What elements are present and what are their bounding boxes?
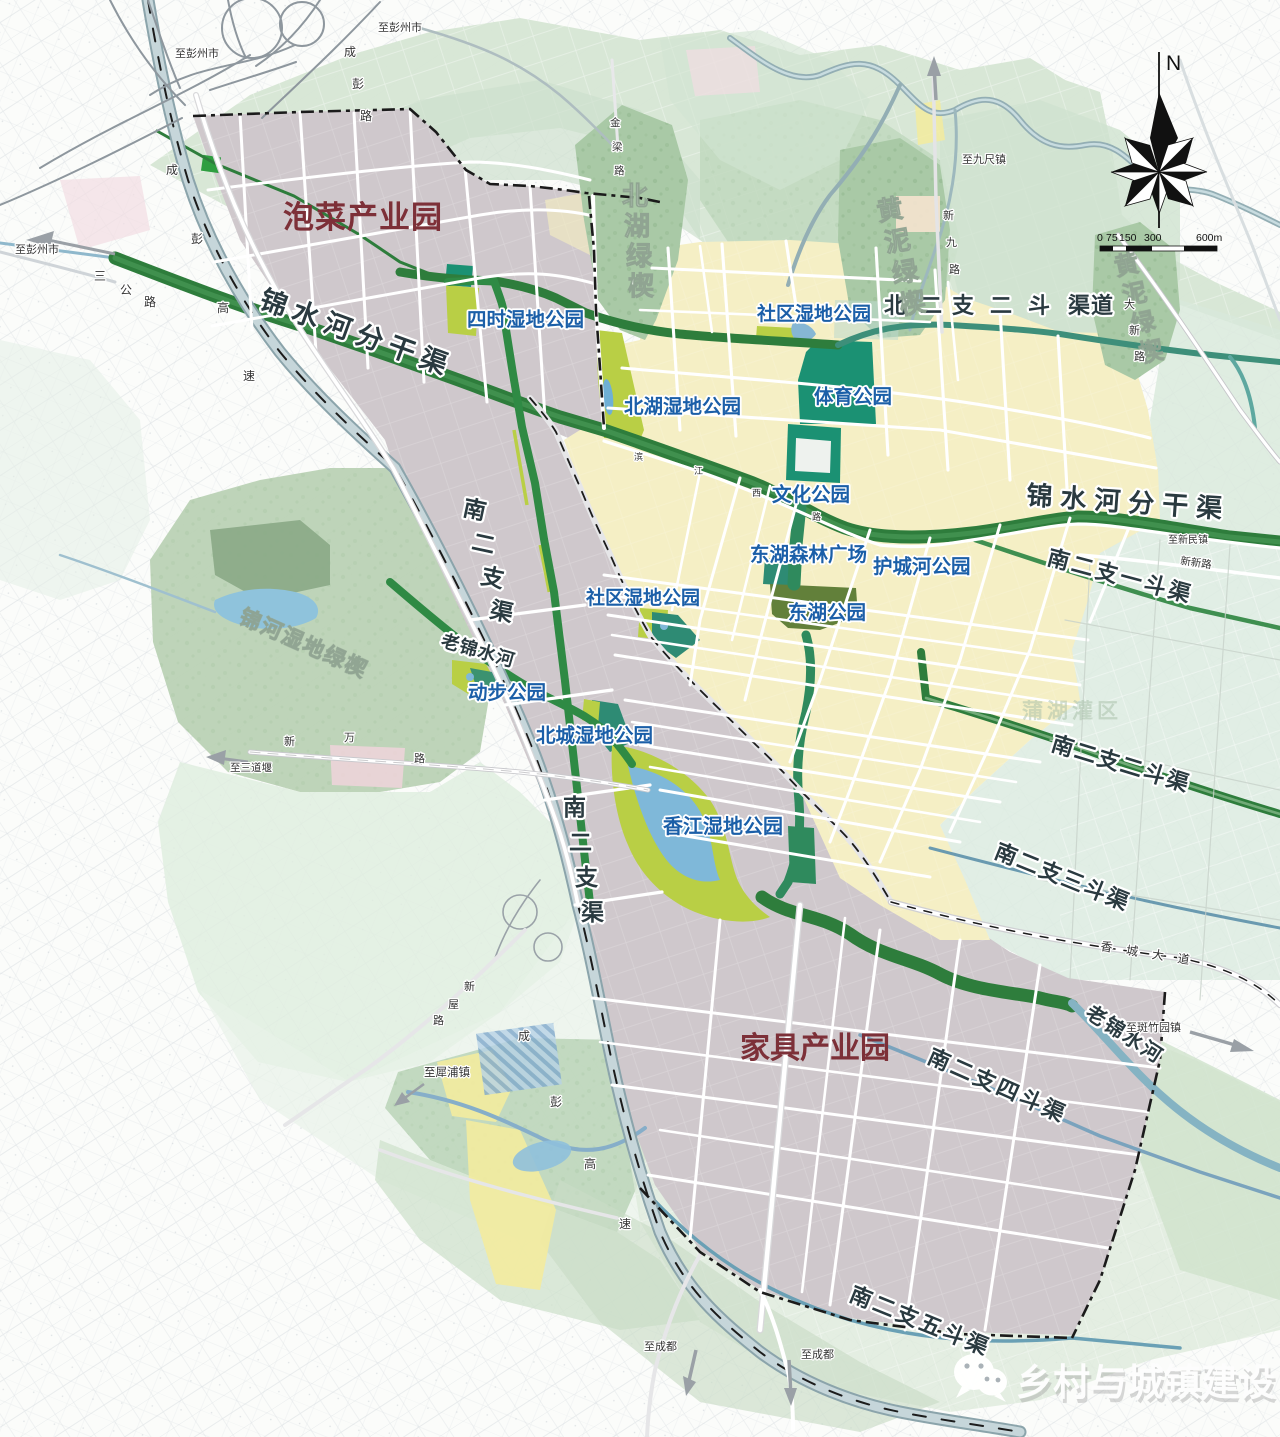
- svg-text:路: 路: [614, 164, 625, 177]
- svg-text:路: 路: [144, 294, 156, 309]
- svg-text:蒲湖灌区: 蒲湖灌区: [1022, 700, 1122, 723]
- svg-text:至彭州市: 至彭州市: [175, 46, 219, 60]
- svg-text:至犀浦镇: 至犀浦镇: [424, 1065, 470, 1079]
- svg-text:香江湿地公园: 香江湿地公园: [663, 815, 783, 838]
- svg-text:支: 支: [952, 293, 975, 318]
- svg-text:高: 高: [584, 1156, 596, 1171]
- svg-text:路: 路: [360, 108, 372, 123]
- svg-text:彭: 彭: [352, 77, 364, 91]
- svg-text:九: 九: [946, 236, 957, 249]
- svg-text:至彭州市: 至彭州市: [15, 242, 59, 256]
- svg-text:四时湿地公园: 四时湿地公园: [467, 308, 584, 331]
- svg-text:乡村与城镇建设: 乡村与城镇建设: [1016, 1362, 1275, 1403]
- svg-text:绿: 绿: [626, 241, 653, 271]
- svg-text:二: 二: [990, 293, 1012, 318]
- svg-text:300: 300: [1144, 232, 1162, 244]
- svg-text:北湖湿地公园: 北湖湿地公园: [624, 395, 741, 418]
- svg-text:黄: 黄: [874, 193, 905, 227]
- svg-text:路: 路: [414, 752, 425, 765]
- svg-text:600m: 600m: [1196, 232, 1223, 244]
- svg-text:体育公园: 体育公园: [814, 385, 892, 408]
- svg-text:二: 二: [569, 829, 592, 855]
- svg-text:动步公园: 动步公园: [468, 682, 546, 704]
- svg-text:高: 高: [217, 300, 229, 315]
- svg-text:彭: 彭: [191, 232, 203, 246]
- svg-text:南: 南: [563, 794, 586, 820]
- svg-text:支: 支: [574, 864, 599, 890]
- svg-text:湖: 湖: [624, 211, 650, 241]
- svg-text:万: 万: [344, 732, 355, 744]
- svg-text:至彭州市: 至彭州市: [378, 20, 422, 34]
- svg-text:新: 新: [943, 208, 954, 222]
- svg-text:成: 成: [166, 163, 178, 177]
- svg-text:护城河公园: 护城河公园: [873, 555, 971, 578]
- svg-text:新: 新: [284, 734, 295, 748]
- svg-text:新: 新: [464, 979, 475, 993]
- svg-text:彭: 彭: [550, 1095, 562, 1109]
- svg-text:家具产业园: 家具产业园: [740, 1032, 890, 1065]
- svg-text:三: 三: [94, 269, 106, 283]
- svg-text:楔: 楔: [897, 286, 928, 320]
- svg-text:路: 路: [949, 263, 960, 276]
- svg-text:文化公园: 文化公园: [772, 483, 850, 506]
- svg-text:东湖森林广场: 东湖森林广场: [750, 543, 867, 566]
- svg-text:至新民镇: 至新民镇: [1168, 533, 1208, 546]
- svg-text:75: 75: [1106, 232, 1118, 244]
- svg-text:新: 新: [1129, 323, 1140, 337]
- svg-text:社区湿地公园: 社区湿地公园: [756, 302, 871, 325]
- svg-text:路: 路: [812, 511, 821, 522]
- svg-text:N: N: [1166, 52, 1181, 75]
- svg-text:速: 速: [619, 1217, 631, 1231]
- svg-text:速: 速: [243, 369, 255, 383]
- svg-text:成: 成: [344, 45, 356, 59]
- svg-text:江: 江: [694, 466, 703, 476]
- svg-text:北: 北: [622, 181, 648, 211]
- svg-text:至九尺镇: 至九尺镇: [962, 152, 1006, 166]
- svg-text:0: 0: [1097, 232, 1103, 244]
- svg-text:路: 路: [1134, 350, 1145, 363]
- svg-text:渠: 渠: [581, 899, 604, 925]
- svg-text:成: 成: [518, 1029, 530, 1043]
- svg-text:社区湿地公园: 社区湿地公园: [585, 586, 700, 609]
- svg-text:至成都: 至成都: [644, 1340, 677, 1353]
- svg-text:屋: 屋: [448, 998, 459, 1011]
- svg-text:泥: 泥: [882, 224, 913, 258]
- svg-text:梁: 梁: [612, 140, 623, 153]
- svg-text:公: 公: [120, 283, 132, 297]
- svg-text:金: 金: [610, 116, 621, 129]
- svg-text:西: 西: [752, 488, 761, 498]
- svg-text:滨: 滨: [634, 451, 643, 462]
- svg-text:斗: 斗: [1028, 293, 1050, 318]
- svg-text:楔: 楔: [628, 271, 654, 301]
- svg-text:大: 大: [1124, 297, 1135, 311]
- svg-text:150: 150: [1119, 232, 1137, 244]
- svg-text:北城湿地公园: 北城湿地公园: [536, 724, 653, 747]
- svg-text:至成都: 至成都: [801, 1348, 834, 1361]
- svg-text:至斑竹园镇: 至斑竹园镇: [1126, 1020, 1181, 1034]
- svg-text:至三道堰: 至三道堰: [230, 761, 272, 774]
- svg-text:东湖公园: 东湖公园: [788, 601, 866, 624]
- svg-text:路: 路: [433, 1014, 444, 1027]
- svg-text:渠道: 渠道: [1068, 293, 1114, 318]
- svg-text:泡菜产业园: 泡菜产业园: [283, 200, 443, 235]
